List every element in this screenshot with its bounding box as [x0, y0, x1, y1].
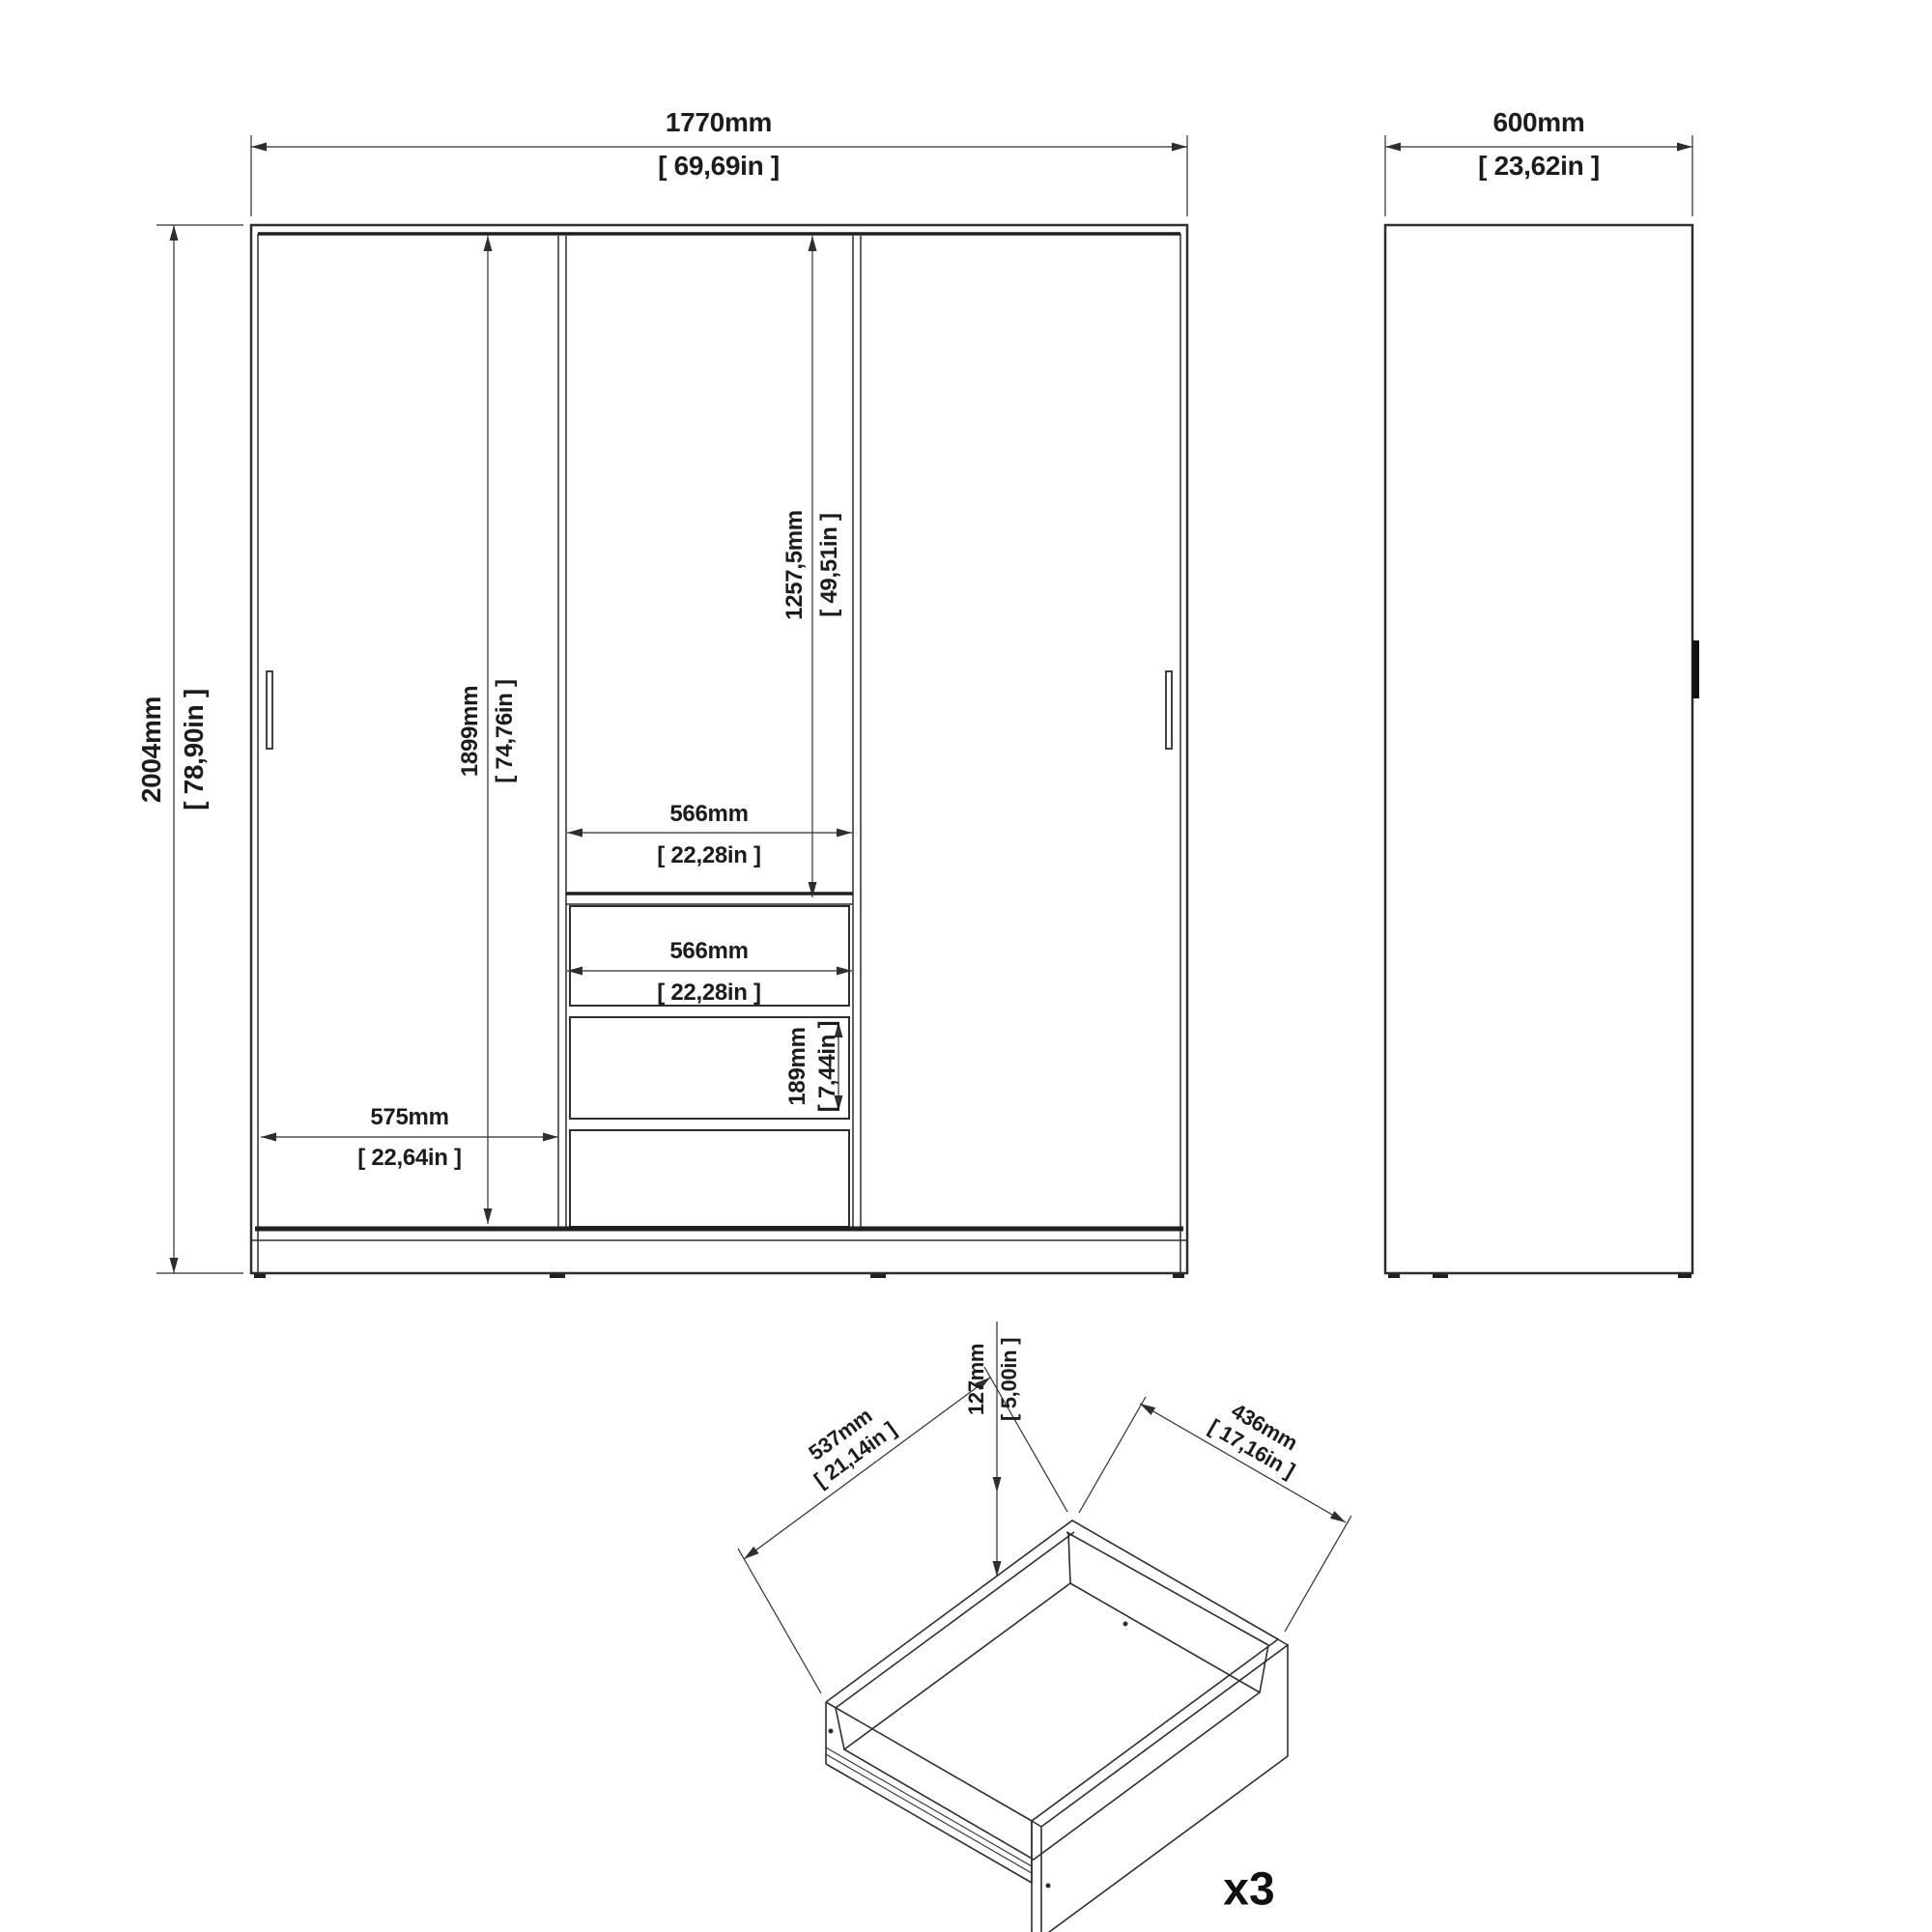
drawer-quantity-label: x3 [1223, 1863, 1274, 1917]
right-door-handle [1166, 671, 1172, 749]
dim-door-height-mm: 1899mm [457, 686, 484, 777]
front-door-handles [267, 671, 1172, 749]
dim-drawer-front-height-mm: 189mm [784, 1027, 811, 1105]
left-door-handle [267, 671, 272, 749]
dim-upper-section-in: [ 49,51in ] [816, 513, 843, 616]
dim-front-height-mm: 2004mm [136, 696, 167, 803]
dim-front-width-in: [ 69,69in ] [658, 151, 780, 182]
drawer-iso-linework [826, 1520, 1288, 1932]
side-door-handle [1692, 640, 1699, 698]
dim-shelf-width-top-in: [ 22,28in ] [657, 842, 760, 869]
dim-front-height-in: [ 78,90in ] [179, 689, 210, 810]
dim-door-width-in: [ 22,64in ] [357, 1145, 461, 1172]
dim-drawer-height-in: [ 5,00in ] [997, 1338, 1022, 1421]
technical-drawing-canvas: 1770mm [ 69,69in ] 600mm [ 23,62in ] 200… [0, 0, 1932, 1932]
dim-side-depth-in: [ 23,62in ] [1478, 151, 1600, 182]
dim-shelf-width-top-mm: 566mm [669, 801, 748, 828]
front-view-dimension-lines [156, 135, 1187, 1273]
side-view-linework [1385, 225, 1699, 1276]
drawer-dimension-lines [738, 1321, 1351, 1693]
dim-door-width-mm: 575mm [370, 1104, 448, 1131]
dim-shelf-width-mid-in: [ 22,28in ] [657, 980, 760, 1007]
dim-front-width-mm: 1770mm [666, 107, 772, 138]
dim-door-height-in: [ 74,76in ] [492, 679, 519, 782]
dim-drawer-height-mm: 127mm [964, 1344, 989, 1415]
dim-drawer-front-height-in: [ 7,44in ] [814, 1021, 841, 1112]
dim-shelf-width-mid-mm: 566mm [669, 938, 748, 965]
drawing-linework [0, 0, 1932, 1932]
dim-upper-section-mm: 1257,5mm [781, 510, 809, 620]
dim-side-depth-mm: 600mm [1492, 107, 1584, 138]
